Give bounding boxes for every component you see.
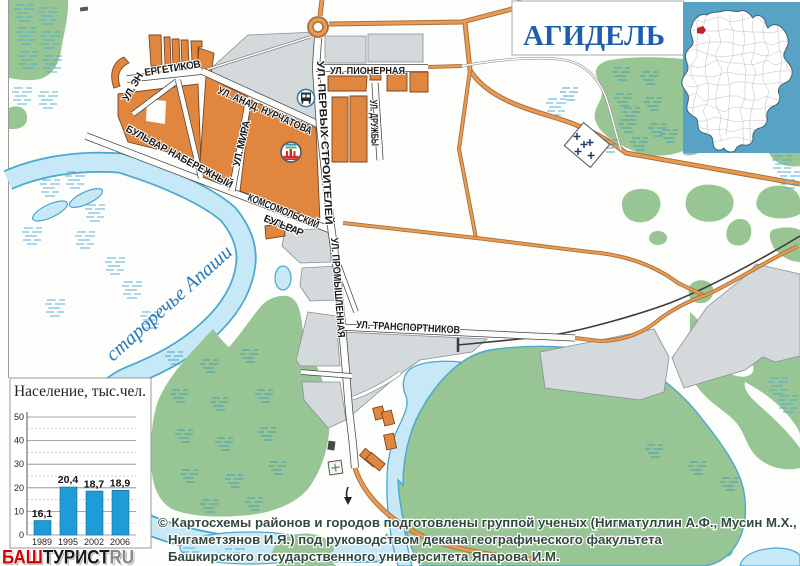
svg-text:18,7: 18,7 [84, 479, 105, 491]
svg-text:Население, тыс.чел.: Население, тыс.чел. [14, 383, 146, 400]
svg-text:© Картосхемы районов и городов: © Картосхемы районов и городов подготовл… [158, 515, 797, 530]
svg-text:УЛ. ЭН: УЛ. ЭН [120, 71, 146, 104]
svg-text:УЛ. ДРУЖБЫ: УЛ. ДРУЖБЫ [367, 100, 381, 146]
svg-text:староречье Апаши: староречье Апаши [102, 241, 237, 366]
svg-text:18,9: 18,9 [110, 478, 131, 490]
svg-text:БАШТУРИСТRU: БАШТУРИСТRU [2, 548, 134, 566]
svg-text:16,1: 16,1 [32, 508, 53, 520]
svg-text:20: 20 [14, 483, 24, 493]
svg-text:УЛ. ПРОМЫШЛЕННАЯ: УЛ. ПРОМЫШЛЕННАЯ [328, 237, 347, 338]
svg-text:БУЛЬВАР НАБЕРЕЖНЫЙ: БУЛЬВАР НАБЕРЕЖНЫЙ [124, 122, 236, 191]
svg-text:2002: 2002 [84, 537, 104, 547]
svg-text:УЛ. ПЕРВЫХ СТРОИТЕЛЕЙ: УЛ. ПЕРВЫХ СТРОИТЕЛЕЙ [314, 60, 336, 224]
svg-text:УЛ. ТРАНСПОРТНИКОВ: УЛ. ТРАНСПОРТНИКОВ [356, 319, 461, 336]
svg-text:УЛ. АНАД. НУРЧАТОВА: УЛ. АНАД. НУРЧАТОВА [216, 85, 314, 138]
svg-text:АГИДЕЛЬ: АГИДЕЛЬ [523, 20, 665, 52]
svg-text:50: 50 [14, 412, 24, 422]
svg-text:УЛ. МИРА: УЛ. МИРА [231, 119, 253, 168]
svg-text:Нигаметзянов И.Я.) под руковод: Нигаметзянов И.Я.) под руководством дека… [168, 532, 663, 547]
svg-text:1989: 1989 [32, 537, 52, 547]
svg-text:2006: 2006 [110, 537, 130, 547]
svg-text:1995: 1995 [58, 537, 78, 547]
svg-text:0: 0 [19, 530, 24, 540]
svg-text:20,4: 20,4 [58, 474, 79, 486]
svg-text:40: 40 [14, 436, 24, 446]
svg-text:30: 30 [14, 459, 24, 469]
svg-text:УЛ. ПИОНЕРНАЯ: УЛ. ПИОНЕРНАЯ [330, 65, 405, 77]
svg-text:ЕРГЕТИКОВ: ЕРГЕТИКОВ [144, 58, 203, 79]
svg-text:Башкирского государственного у: Башкирского государственного университет… [168, 549, 560, 564]
svg-text:10: 10 [14, 506, 24, 516]
